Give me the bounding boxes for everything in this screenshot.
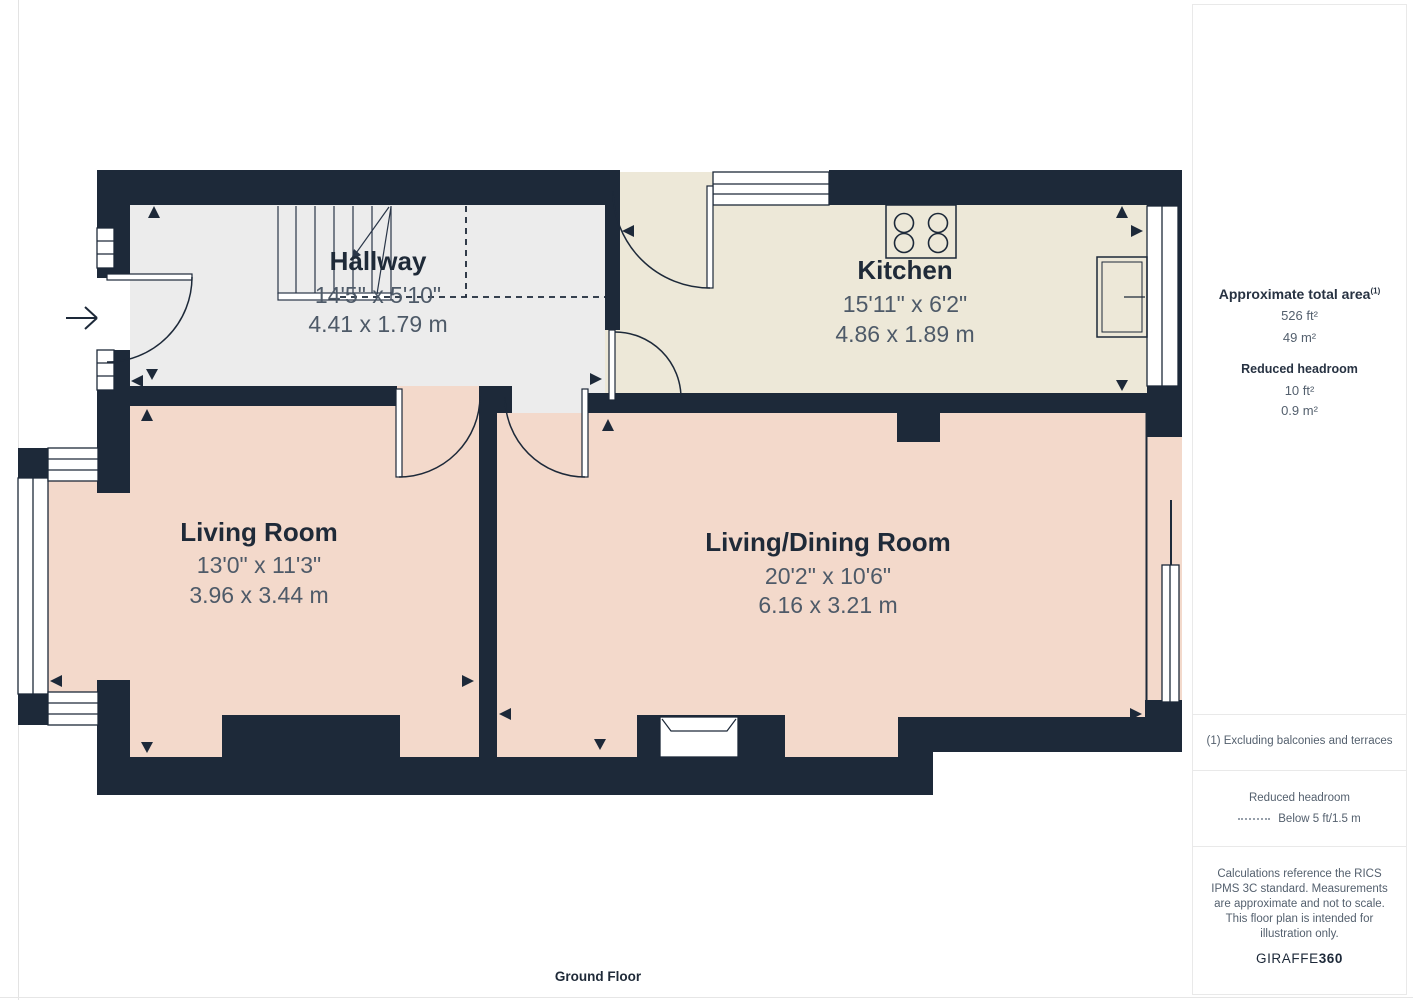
room-dim-imperial: 15'11" x 6'2" bbox=[843, 291, 967, 317]
window-icon bbox=[1147, 206, 1178, 386]
room-title: Hallway bbox=[330, 246, 427, 276]
entry-arrow-icon bbox=[66, 307, 97, 329]
total-area-footnote-marker: (1) bbox=[1370, 286, 1380, 295]
legend-title: Reduced headroom bbox=[1193, 792, 1406, 804]
room-dim-metric: 4.41 x 1.79 m bbox=[308, 311, 447, 337]
window-icon bbox=[713, 172, 829, 205]
floor-label: Ground Floor bbox=[555, 969, 642, 984]
total-area-ft: 526 ft² bbox=[1193, 308, 1406, 323]
bay-opening-floor bbox=[97, 480, 130, 692]
room-title: Living/Dining Room bbox=[705, 527, 951, 557]
room-dim-metric: 6.16 x 3.21 m bbox=[758, 592, 897, 618]
total-area-m: 49 m² bbox=[1193, 330, 1406, 345]
giraffe360-logo: GIRAFFE360 bbox=[1193, 951, 1406, 966]
legend-item-label: Below 5 ft/1.5 m bbox=[1278, 813, 1360, 825]
hallway-extension-floor bbox=[512, 388, 586, 413]
sidebar-divider bbox=[1193, 846, 1406, 847]
window-icon bbox=[97, 350, 114, 390]
reduced-headroom-ft: 10 ft² bbox=[1193, 383, 1406, 398]
room-dim-metric: 4.86 x 1.89 m bbox=[835, 321, 974, 347]
disclaimer-text: Calculations reference the RICS IPMS 3C … bbox=[1210, 867, 1390, 942]
room-dim-imperial: 14'5" x 5'10" bbox=[315, 282, 441, 308]
room-title: Living Room bbox=[180, 517, 337, 547]
living-room-doorway-floor bbox=[397, 386, 479, 413]
living-room-floor bbox=[130, 400, 479, 757]
floorplan-page: Hallway 14'5" x 5'10" 4.41 x 1.79 m Kitc… bbox=[0, 0, 1413, 1000]
window-icon bbox=[1162, 565, 1179, 702]
total-area-label: Approximate total area bbox=[1219, 286, 1371, 302]
sidebar-divider bbox=[1193, 714, 1406, 715]
info-sidebar: Approximate total area(1) 526 ft² 49 m² … bbox=[1192, 4, 1407, 995]
room-dim-imperial: 20'2" x 10'6" bbox=[765, 563, 891, 589]
dotted-line-swatch bbox=[1238, 818, 1270, 820]
room-title: Kitchen bbox=[857, 255, 952, 285]
brand-bold: 360 bbox=[1319, 951, 1343, 966]
reduced-headroom-m: 0.9 m² bbox=[1193, 403, 1406, 418]
room-dim-metric: 3.96 x 3.44 m bbox=[189, 582, 328, 608]
fireplace-icon bbox=[660, 717, 738, 757]
bay-window-floor bbox=[48, 480, 97, 692]
sidebar-divider bbox=[1193, 770, 1406, 771]
brand-regular: GIRAFFE bbox=[1256, 951, 1319, 966]
total-area-heading: Approximate total area(1) bbox=[1193, 286, 1406, 302]
legend-row: Below 5 ft/1.5 m bbox=[1193, 813, 1406, 825]
reduced-headroom-heading: Reduced headroom bbox=[1193, 362, 1406, 376]
room-dim-imperial: 13'0" x 11'3" bbox=[197, 552, 321, 578]
area-footnote: (1) Excluding balconies and terraces bbox=[1193, 735, 1406, 747]
window-icon bbox=[97, 228, 114, 268]
